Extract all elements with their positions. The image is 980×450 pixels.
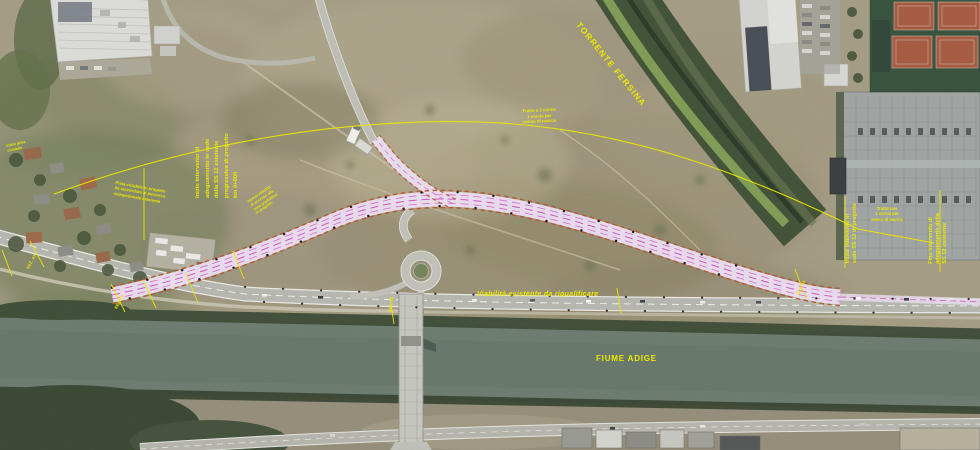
note-line: della SS 12 esistente (213, 122, 223, 198)
note-line: progressiva di progetto (223, 122, 233, 198)
note-line: adeguamento in sede (204, 122, 214, 198)
note-line: Inizio intervento di (194, 122, 204, 198)
note-line: sede SS 12 di progetto (852, 195, 859, 263)
project-end-note: Fine intervento di adeguamento della SS … (928, 190, 950, 264)
carriageway-note: Tratto a 2 corsie 1 corsia per senso di … (511, 106, 568, 126)
note-line: senso di marcia (862, 217, 912, 222)
right-carriageway-note: Tratto con 1 corsia per senso di marcia (862, 206, 912, 222)
note-line: Inizio intervento in (845, 195, 852, 263)
note-line: km 0+000 (232, 122, 242, 198)
aerial-plan-map: TORRENTE FERSINA FIUME ADIGE Viabilità e… (0, 0, 980, 450)
aerial-map-svg (0, 0, 980, 450)
grain-overlay (0, 0, 980, 450)
note-line: adeguamento della (935, 190, 942, 264)
river-label: FIUME ADIGE (596, 354, 657, 364)
note-line: Fine intervento di (928, 190, 935, 264)
left-works-note: Inizio intervento di adeguamento in sede… (194, 122, 242, 198)
project-start-note: Inizio intervento in sede SS 12 di proge… (845, 195, 859, 263)
note-line: SS 12 esistente (943, 190, 950, 264)
existing-road-label: Viabilità esistente da riqualificare (477, 291, 598, 299)
